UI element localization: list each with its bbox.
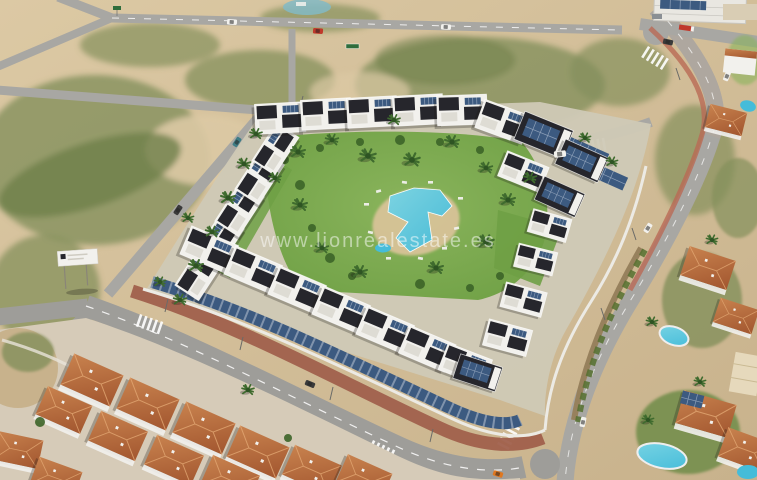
car [227,19,237,25]
billboard-logo-mark [60,254,65,259]
container [652,14,662,19]
car [441,24,451,30]
junction-south [530,449,560,479]
van [554,150,567,158]
watermark-text: www.lionrealestate.es [259,230,495,252]
aerial-photo: www.lionrealestate.es [0,0,757,480]
aerial-photo-canvas: www.lionrealestate.es [0,0,757,480]
road-left-exit [0,307,88,317]
road-sign-guide [346,44,359,49]
beige-building [723,4,757,20]
car [313,28,323,34]
